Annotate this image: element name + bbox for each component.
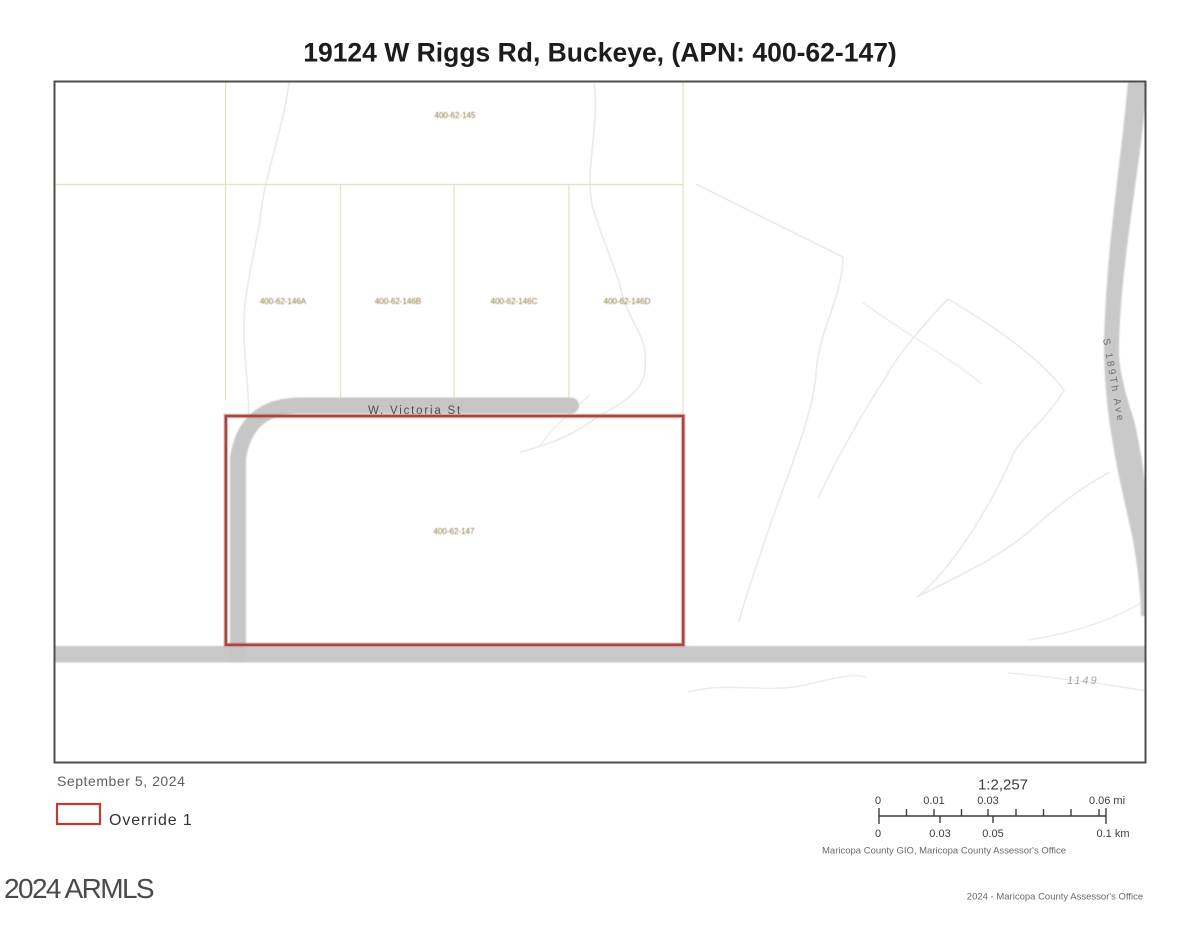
svg-text:Override 1: Override 1 [109, 812, 193, 829]
svg-text:0: 0 [875, 828, 881, 840]
svg-text:19124 W Riggs Rd, Buckeye, (AP: 19124 W Riggs Rd, Buckeye, (APN: 400-62-… [303, 37, 897, 67]
svg-text:0.01: 0.01 [923, 795, 944, 807]
svg-text:2024 ARMLS: 2024 ARMLS [4, 873, 154, 904]
svg-text:September 5, 2024: September 5, 2024 [57, 773, 185, 789]
svg-text:400-62-146B: 400-62-146B [375, 297, 421, 306]
svg-text:400-62-146A: 400-62-146A [260, 297, 307, 306]
svg-text:1:2,257: 1:2,257 [978, 776, 1028, 793]
svg-text:2024 - Maricopa County Assesso: 2024 - Maricopa County Assessor's Office [967, 892, 1143, 903]
svg-text:0.03: 0.03 [929, 828, 950, 840]
svg-text:400-62-146C: 400-62-146C [491, 297, 538, 306]
svg-text:0.05: 0.05 [982, 828, 1003, 840]
svg-text:400-62-146D: 400-62-146D [604, 297, 651, 306]
svg-text:1149: 1149 [1067, 675, 1099, 687]
svg-text:0.03: 0.03 [977, 795, 998, 807]
svg-text:0.1 km: 0.1 km [1096, 828, 1129, 840]
svg-text:400-62-147: 400-62-147 [434, 527, 475, 536]
svg-text:400-62-145: 400-62-145 [435, 111, 476, 120]
svg-text:0.06 mi: 0.06 mi [1089, 795, 1125, 807]
svg-text:Maricopa County GIO, Maricopa: Maricopa County GIO, Maricopa County Ass… [822, 846, 1066, 857]
svg-text:0: 0 [875, 795, 881, 807]
